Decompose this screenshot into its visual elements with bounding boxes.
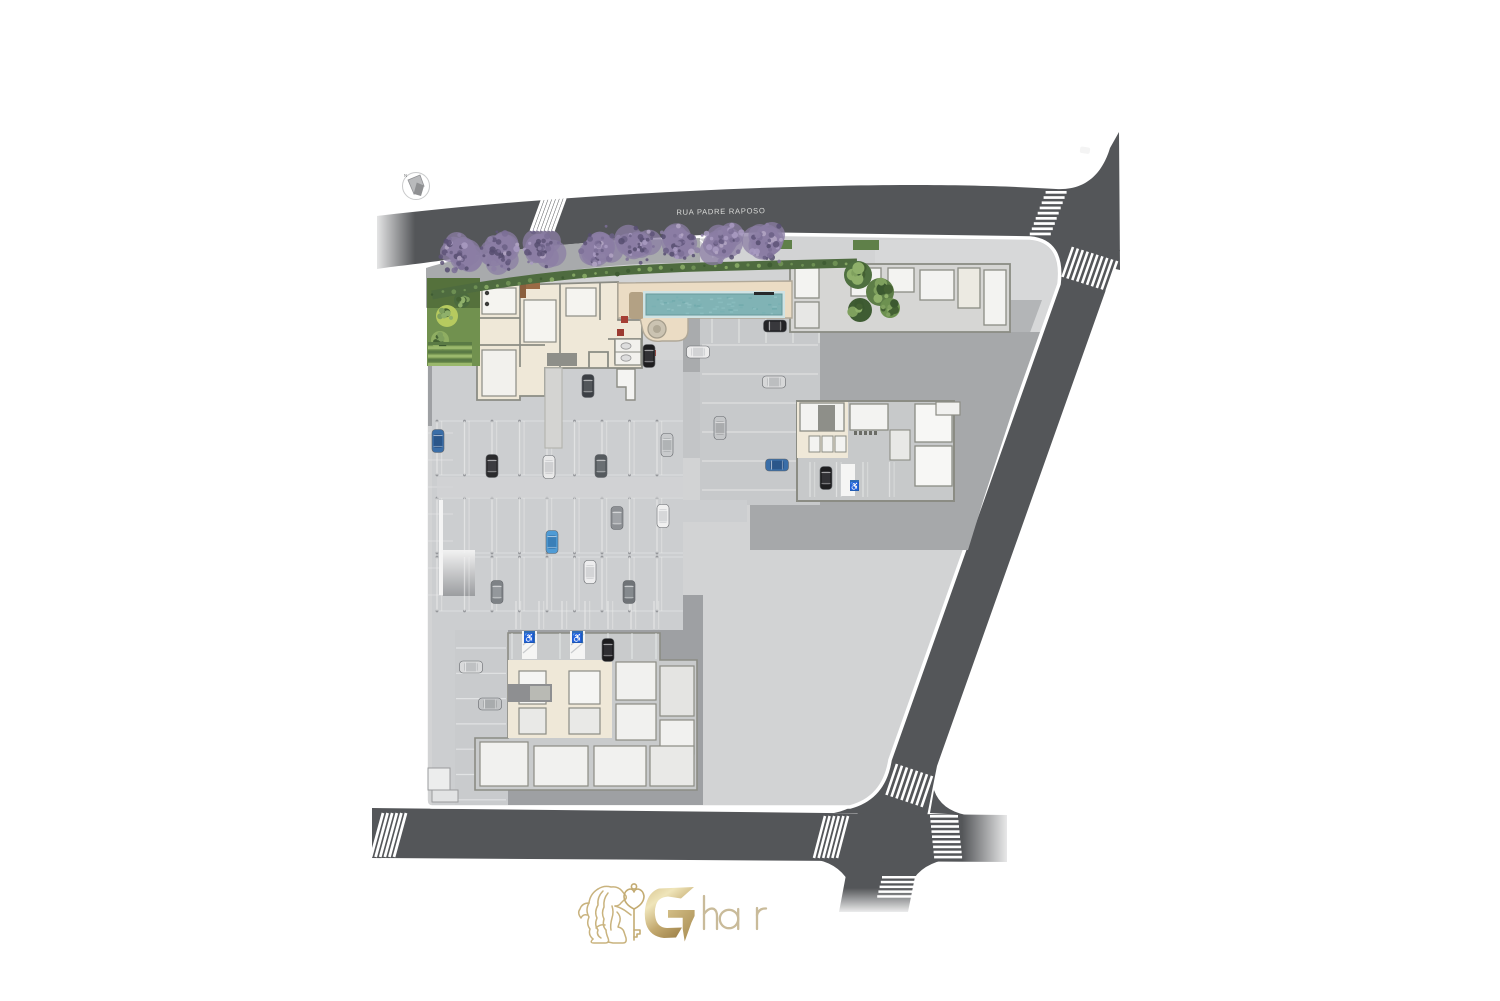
- svg-text:♿: ♿: [524, 632, 535, 643]
- svg-text:RUA PADRE RAPOSO: RUA PADRE RAPOSO: [676, 206, 765, 217]
- svg-text:N: N: [404, 173, 407, 178]
- svg-text:♿: ♿: [850, 481, 860, 491]
- svg-text:♿: ♿: [572, 632, 583, 643]
